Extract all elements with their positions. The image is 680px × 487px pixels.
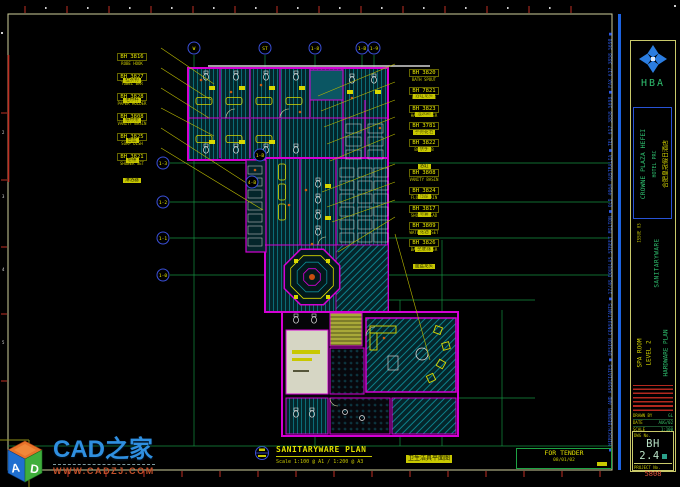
callout-code: BH 3827 — [117, 73, 146, 81]
drawing-title-cn: 卫生洁具平面图 — [406, 455, 452, 463]
callout-code: BH 3817 — [409, 205, 438, 213]
fixture-callout: BH 3826BASIN MIXER面盆龙头 — [396, 230, 452, 271]
field-label: DRAWN BY — [633, 413, 652, 419]
level-name: LEVEL 2 — [646, 340, 653, 365]
field-value: GL — [668, 413, 673, 419]
ruler-mark — [297, 7, 299, 9]
grid-bubble-label: 4-B — [248, 180, 256, 186]
callout-code: BH 3808 — [117, 113, 146, 121]
ruler-mark — [339, 7, 341, 9]
grid-bubble-label: 1-1 — [159, 236, 167, 242]
callout-code: BH 3821 — [117, 153, 146, 161]
callout-cn: 面盆龙头 — [413, 264, 435, 269]
drawing-title-underline — [276, 456, 372, 457]
grid-bubble-label: ST — [262, 46, 268, 52]
tender-chip — [597, 462, 607, 466]
callout-code: BH 3816 — [117, 53, 146, 61]
project-no: 5808 — [634, 470, 672, 478]
ruler-number: 2 — [2, 131, 4, 135]
ruler-mark — [549, 7, 551, 9]
cadzj-cube-icon: A D — [2, 437, 48, 487]
dwg-chip — [662, 454, 667, 459]
drawing-scale: Scale 1:100 @ A1 / 1:200 @ A3 — [276, 459, 363, 465]
ruler-number: 4 — [2, 268, 4, 272]
callout-code: BH 3822 — [409, 139, 438, 147]
callout-code: BH 3825 — [117, 133, 146, 141]
dwg-no: BH 2.4 — [634, 438, 672, 462]
ruler-mark — [129, 7, 131, 9]
cad-sheet: WST1-81-B1-91-31-21-11-01-B4-B ■ HIRSCH/… — [0, 0, 680, 487]
ruler-mark — [213, 7, 215, 9]
drawing-title: SANITARYWARE PLAN — [276, 445, 366, 454]
titleblock-address: ■ HIRSCH/BEDNER AND ASSOCIATES ■ DESIGN … — [609, 33, 614, 452]
grid-bubble-label: 1-2 — [159, 200, 167, 206]
callout-code: BH 3781 — [409, 122, 438, 130]
tender-stamp: FOR TENDER 08/01/02 — [516, 448, 612, 469]
grid-bubble-label: W — [193, 46, 196, 52]
callout-code: BH 3820 — [409, 69, 438, 77]
spa-pool-octagon — [284, 249, 339, 304]
callout-code: BH 3826 — [409, 239, 438, 247]
callout-code: BH 7821 — [409, 87, 438, 95]
ruler-mark — [171, 7, 173, 9]
watermark-url: WWW.CADZJ.COM — [53, 464, 155, 476]
field-value: AUG/02 — [659, 420, 673, 426]
titleblock-fields: DRAWN BYGL DATEAUG/02 SCALE1:100 — [633, 413, 673, 433]
ruler-mark — [381, 7, 383, 9]
watermark-name: CAD之家 — [53, 437, 155, 463]
ruler-mark — [507, 7, 509, 9]
grid-bubble-label: 1-B — [358, 46, 366, 52]
sheet-title: HARDWARE PLAN — [663, 330, 670, 377]
grid-bubble-label: 1-B — [256, 153, 264, 159]
tender-label: FOR TENDER — [517, 449, 611, 458]
ruler-mark — [87, 7, 89, 9]
titleblock-divider — [618, 14, 621, 470]
ruler-mark — [255, 7, 257, 9]
drawing-category: SANITARYWARE — [654, 238, 661, 287]
callout-code: BH 3828 — [117, 93, 146, 101]
watermark: A D CAD之家 WWW.CADZJ.COM — [2, 437, 155, 487]
callout-code: BH 3823 — [409, 105, 438, 113]
ruler-number: 5 — [2, 341, 4, 345]
issue-note: ISSUE 03 — [637, 223, 642, 242]
floor-plan-canvas: WST1-81-B1-91-31-21-11-01-B4-B — [0, 0, 680, 487]
grid-bubble-label: 1-9 — [370, 46, 378, 52]
project-name-box: CROWNE PLAZA HEFEI HOTEL PRC 合肥皇冠假日酒店 — [633, 107, 672, 219]
ruler-number: 3 — [2, 195, 4, 199]
hba-wordmark: HBA — [631, 78, 675, 89]
ruler-mark — [45, 7, 47, 9]
callout-cn: 淋浴器 — [123, 178, 141, 183]
grid-bubble-label: 1-0 — [159, 273, 167, 279]
callout-code: BH 3808 — [409, 169, 438, 177]
titleblock: HBA CROWNE PLAZA HEFEI HOTEL PRC 合肥皇冠假日酒… — [630, 40, 676, 472]
section-marker-icon — [256, 447, 269, 460]
project-subname: HOTEL PRC — [652, 150, 658, 177]
grid-bubble-label: 1-3 — [159, 161, 167, 167]
project-name: CROWNE PLAZA HEFEI — [639, 129, 647, 199]
field-label: DATE — [633, 420, 643, 426]
callout-code: BH 3809 — [409, 222, 438, 230]
hba-logo-icon — [638, 44, 668, 76]
revision-block — [633, 385, 673, 411]
ruler-mark — [423, 7, 425, 9]
callout-code: BH 3824 — [409, 187, 438, 195]
fixture-callout: BH 3821SHOWER SET淋浴器 — [104, 144, 160, 185]
drawing-number-box: DWG No. BH 2.4 PROJECT No. 5808 — [632, 431, 674, 471]
room-name: SPA ROOM — [637, 339, 644, 368]
ruler-mark — [465, 7, 467, 9]
project-name-cn: 合肥皇冠假日酒店 — [661, 140, 670, 188]
grid-bubble-label: 1-8 — [311, 46, 319, 52]
